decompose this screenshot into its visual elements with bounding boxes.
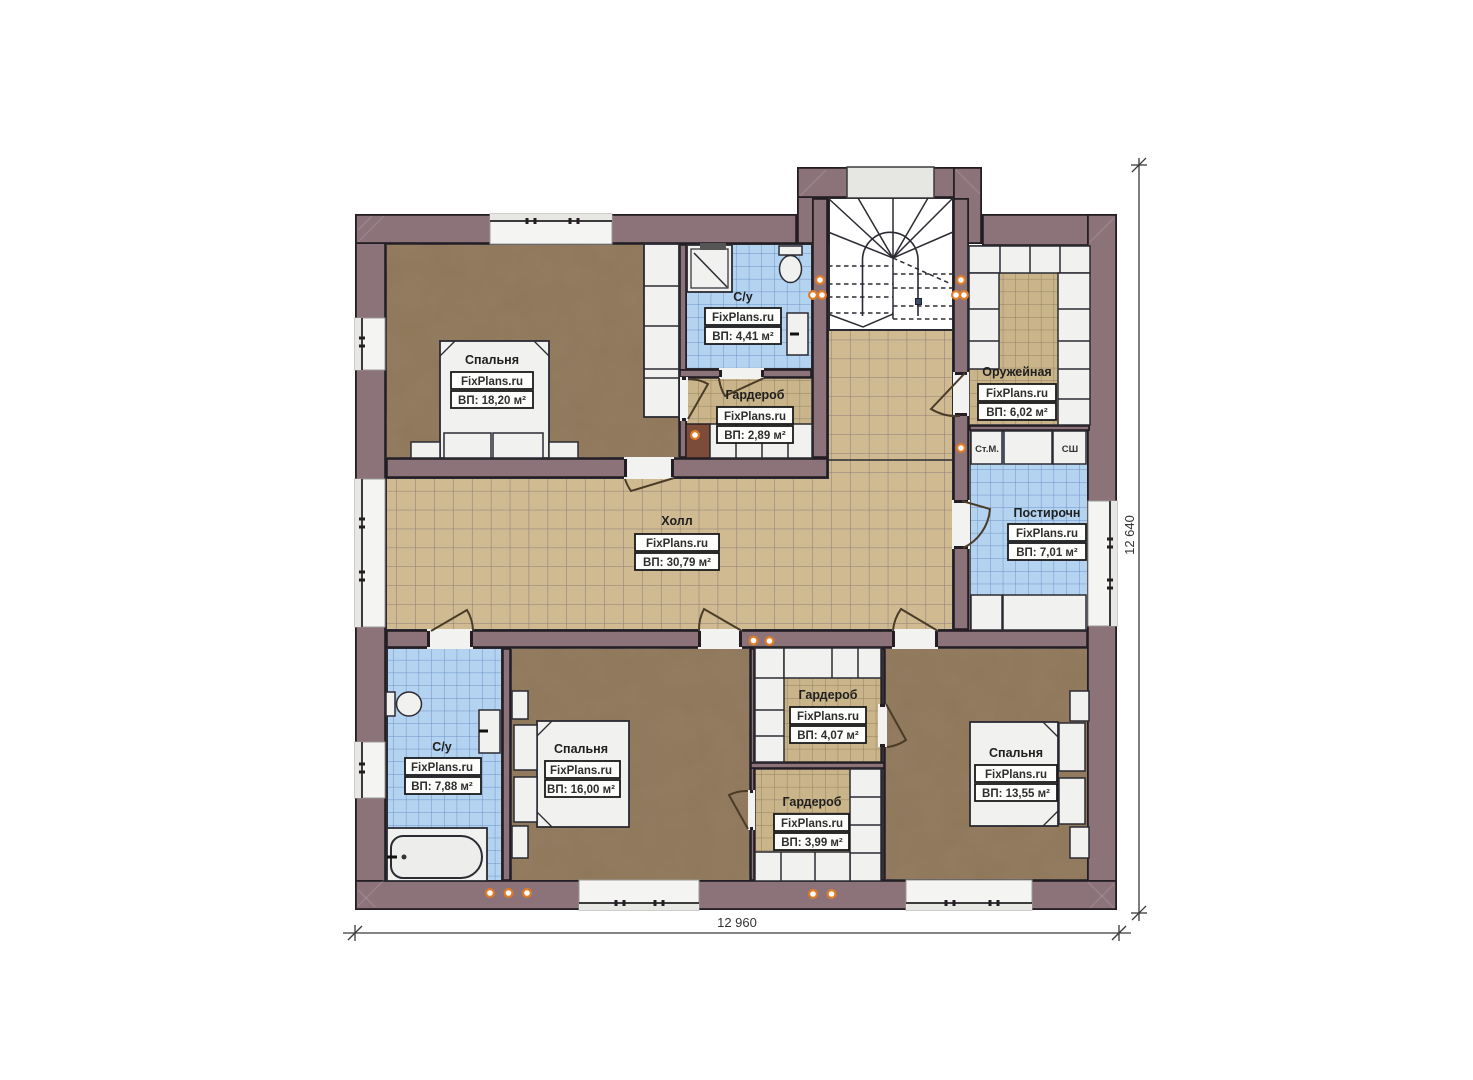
svg-text:FixPlans.ru: FixPlans.ru: [411, 762, 473, 774]
svg-text:С/у: С/у: [432, 740, 452, 754]
svg-text:С/у: С/у: [733, 290, 753, 304]
svg-text:Спальня: Спальня: [554, 742, 608, 756]
svg-text:Гардероб: Гардероб: [725, 388, 784, 402]
svg-text:ВП: 30,79 м²: ВП: 30,79 м²: [643, 557, 711, 569]
svg-text:Постирочн: Постирочн: [1014, 506, 1081, 520]
svg-text:FixPlans.ru: FixPlans.ru: [985, 769, 1047, 781]
svg-text:FixPlans.ru: FixPlans.ru: [646, 538, 708, 550]
svg-text:ВП: 7,88 м²: ВП: 7,88 м²: [411, 781, 473, 793]
svg-text:Гардероб: Гардероб: [782, 795, 841, 809]
svg-text:ВП: 4,07 м²: ВП: 4,07 м²: [797, 730, 859, 742]
svg-text:ВП: 3,99 м²: ВП: 3,99 м²: [781, 837, 843, 849]
svg-text:ВП: 2,89 м²: ВП: 2,89 м²: [724, 430, 786, 442]
svg-text:FixPlans.ru: FixPlans.ru: [461, 376, 523, 388]
svg-text:Спальня: Спальня: [465, 353, 519, 367]
svg-text:Гардероб: Гардероб: [798, 688, 857, 702]
svg-text:ВП: 7,01 м²: ВП: 7,01 м²: [1016, 547, 1078, 559]
svg-text:FixPlans.ru: FixPlans.ru: [550, 765, 612, 777]
svg-text:FixPlans.ru: FixPlans.ru: [724, 411, 786, 423]
svg-text:FixPlans.ru: FixPlans.ru: [1016, 528, 1078, 540]
svg-text:12 640: 12 640: [1122, 515, 1137, 555]
svg-text:ВП: 18,20 м²: ВП: 18,20 м²: [458, 395, 526, 407]
svg-text:Ст.М.: Ст.М.: [975, 444, 999, 455]
svg-text:ВП: 6,02 м²: ВП: 6,02 м²: [986, 407, 1048, 419]
svg-text:Спальня: Спальня: [989, 746, 1043, 760]
svg-text:FixPlans.ru: FixPlans.ru: [781, 818, 843, 830]
svg-text:Холл: Холл: [661, 514, 692, 528]
svg-text:FixPlans.ru: FixPlans.ru: [712, 312, 774, 324]
svg-text:FixPlans.ru: FixPlans.ru: [986, 388, 1048, 400]
svg-text:12 960: 12 960: [717, 915, 757, 930]
svg-text:ВП: 4,41 м²: ВП: 4,41 м²: [712, 331, 774, 343]
svg-text:FixPlans.ru: FixPlans.ru: [797, 711, 859, 723]
svg-text:Оружейная: Оружейная: [982, 365, 1051, 379]
svg-text:ВП: 13,55 м²: ВП: 13,55 м²: [982, 788, 1050, 800]
svg-text:СШ: СШ: [1062, 444, 1078, 455]
svg-text:ВП: 16,00 м²: ВП: 16,00 м²: [547, 784, 615, 796]
